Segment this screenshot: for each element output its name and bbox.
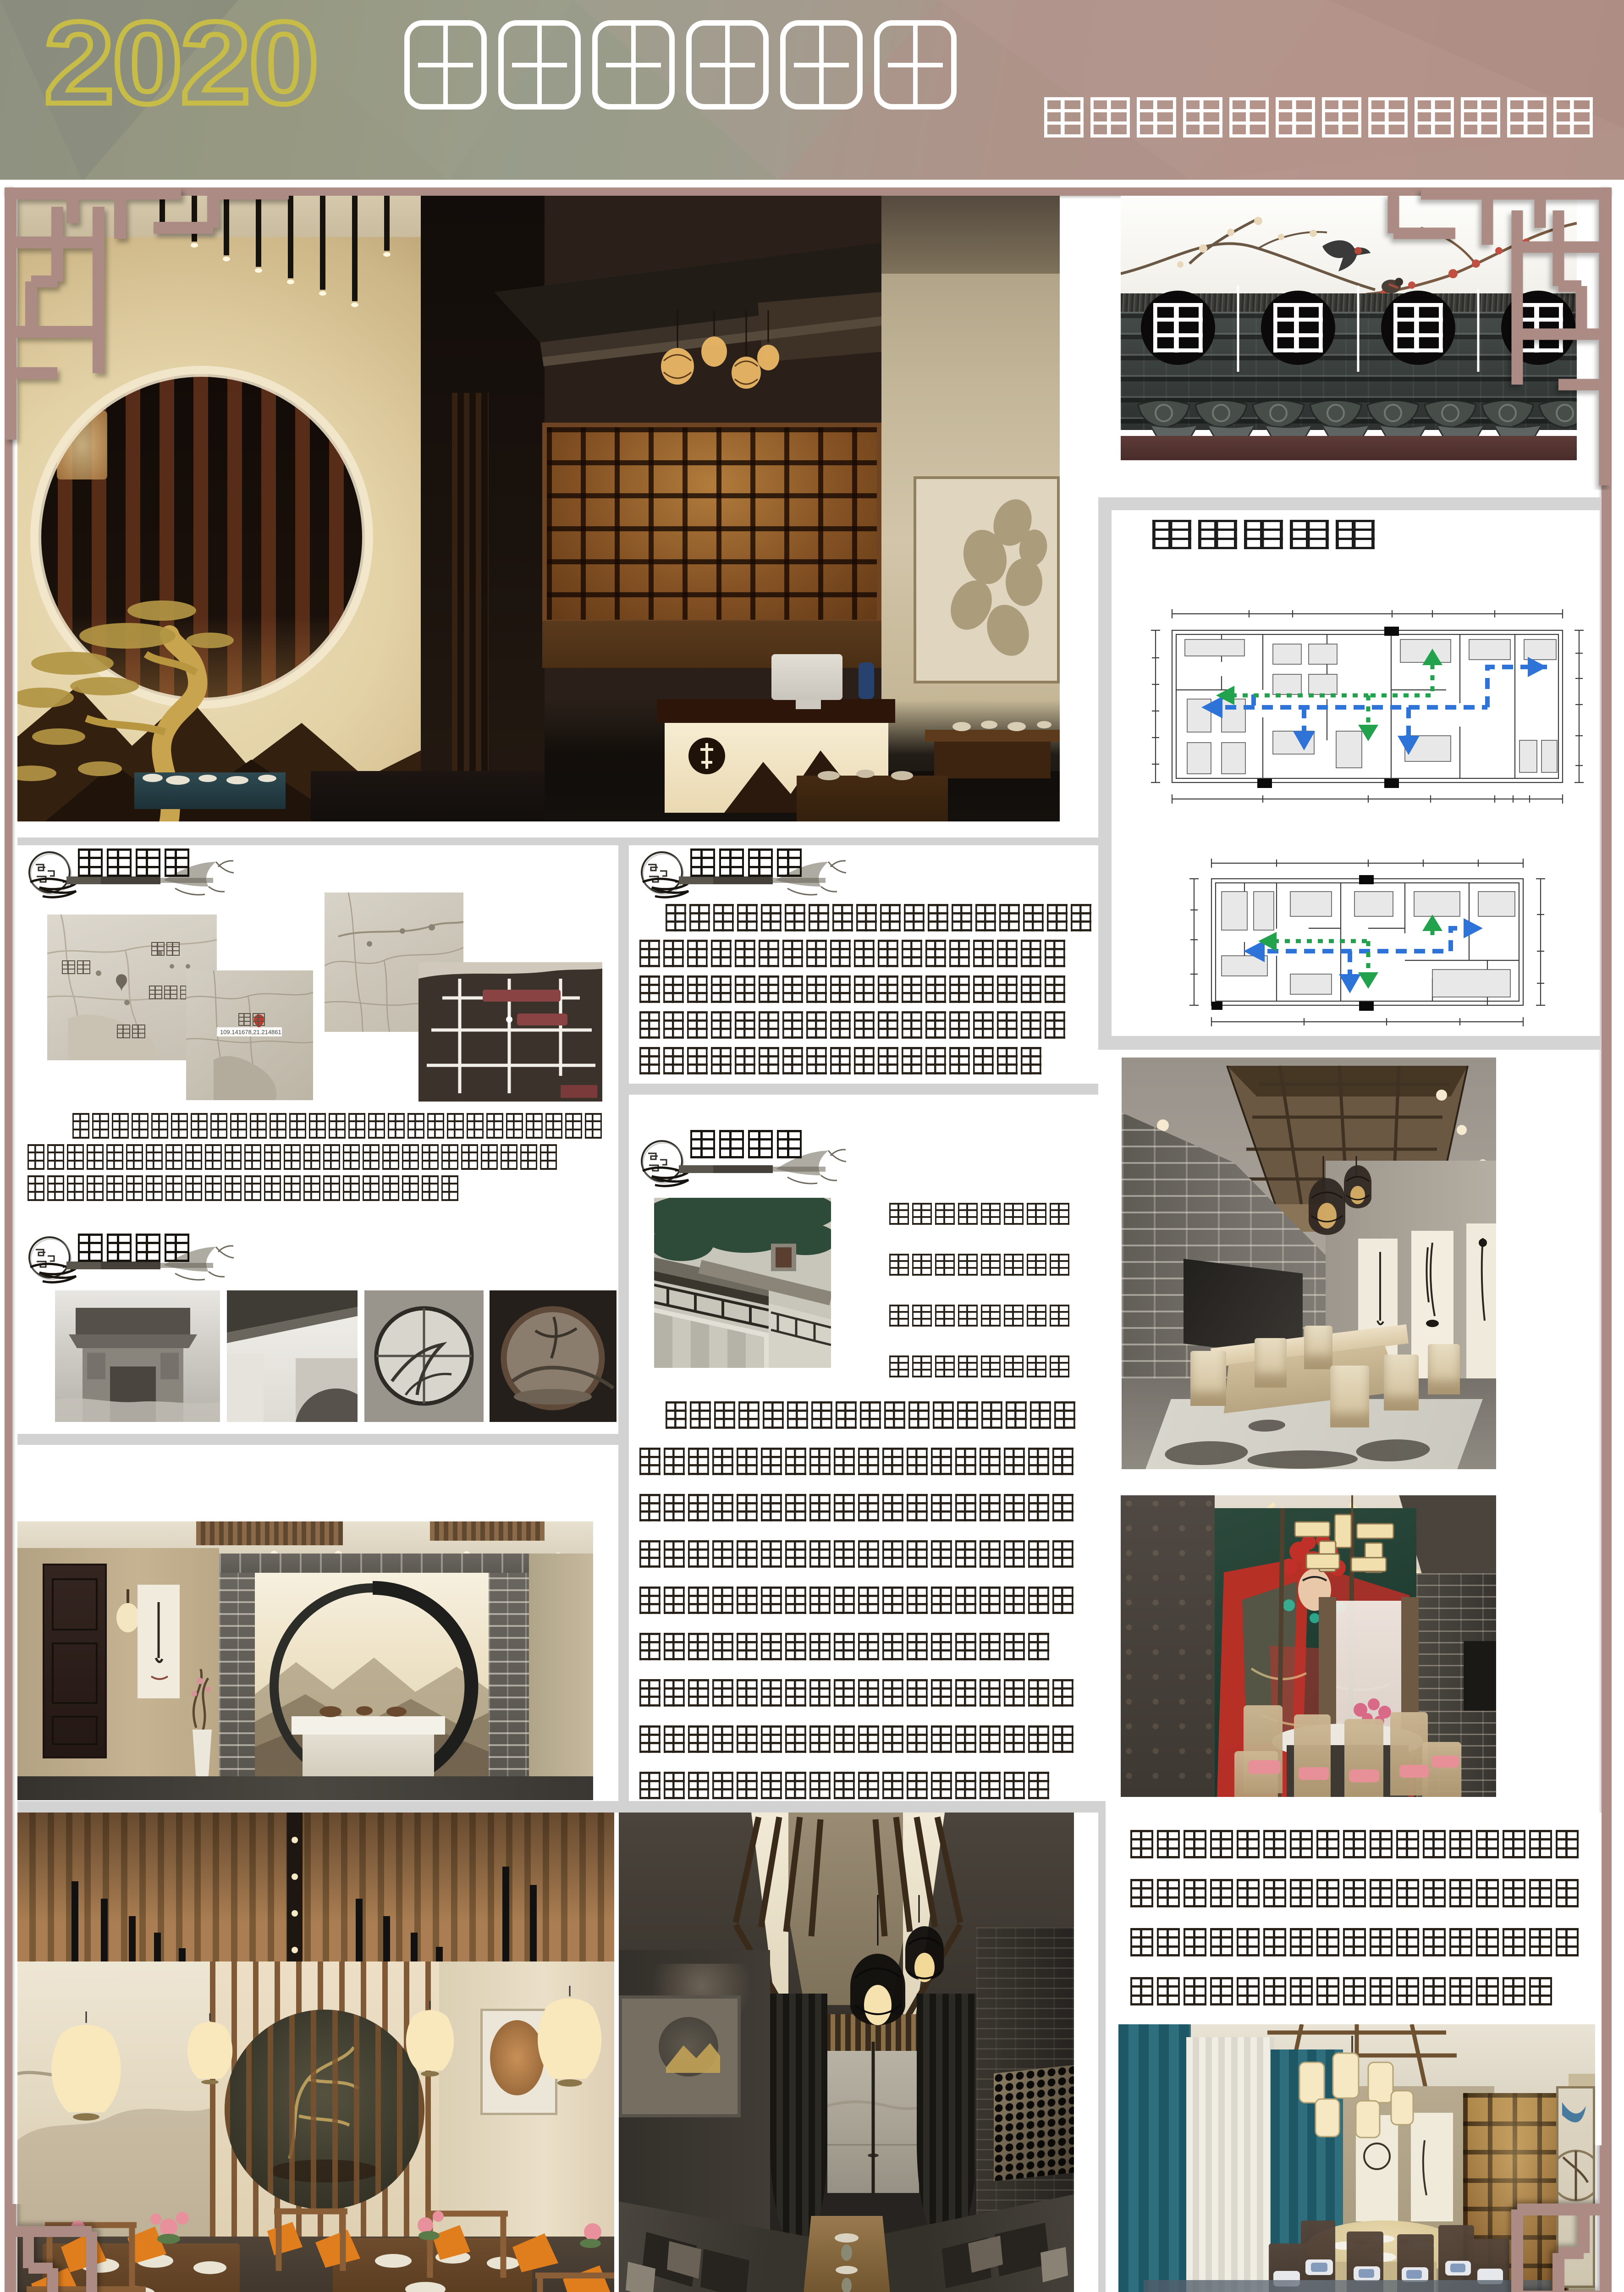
svg-text:2020: 2020 xyxy=(44,5,317,124)
svg-text:109.141678,21.214861: 109.141678,21.214861 xyxy=(220,1029,281,1036)
